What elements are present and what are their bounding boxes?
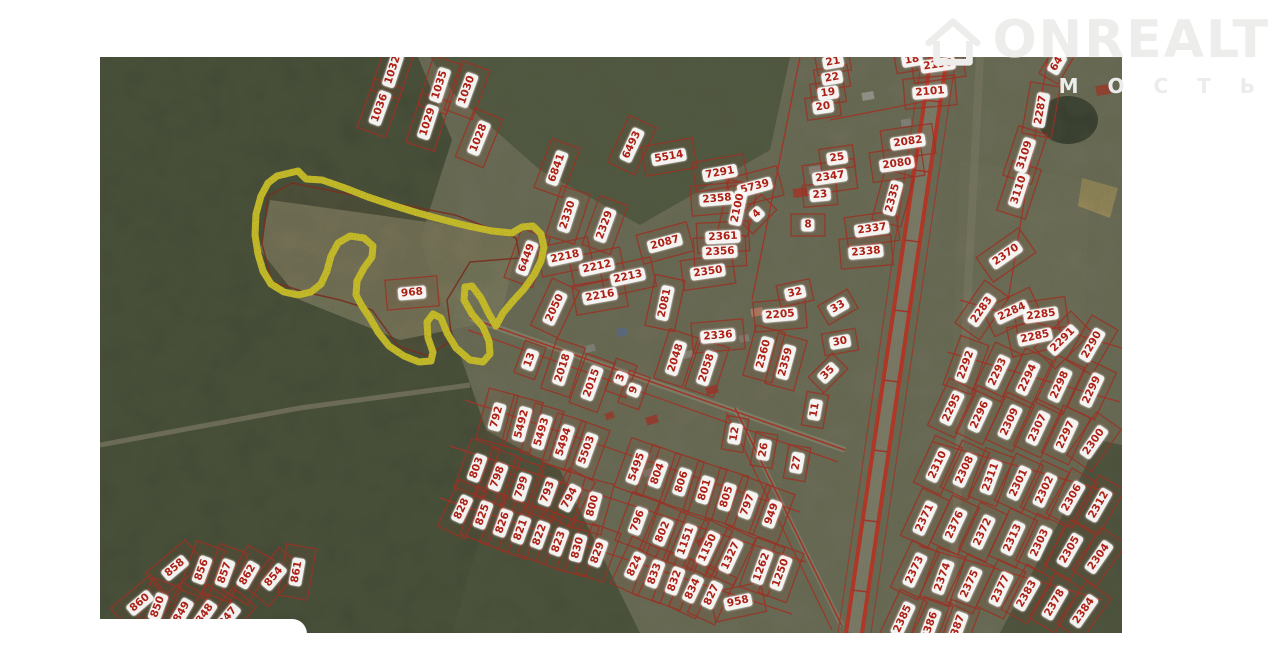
parcel-label: 1151 <box>674 522 698 560</box>
parcel-label: 5514 <box>651 148 688 167</box>
parcel-label: 2377 <box>988 570 1015 607</box>
parcel-label: 804 <box>647 459 669 490</box>
parcel-label: 2301 <box>1006 464 1033 501</box>
parcel-label: 823 <box>548 527 570 558</box>
parcel-label: 857 <box>214 558 236 589</box>
parcel-label: 821 <box>510 515 532 546</box>
parcel-label: 792 <box>487 402 507 432</box>
parcel-label: 6493 <box>619 126 646 163</box>
parcel-label: 2386 <box>918 607 942 633</box>
parcel-label: 5494 <box>552 423 575 461</box>
parcel-label: 2384 <box>1069 593 1100 629</box>
parcel-label: 2311 <box>979 458 1003 496</box>
parcel-label: 801 <box>695 475 716 506</box>
parcel-label: 2383 <box>1013 575 1042 612</box>
parcel-label: 827 <box>700 580 724 611</box>
parcel-label: 2361 <box>705 230 741 245</box>
parcel-label: 949 <box>761 499 783 530</box>
parcel-label: 833 <box>644 559 666 590</box>
parcel-label: 2081 <box>655 284 675 321</box>
parcel-label: 2309 <box>997 403 1024 440</box>
parcel-label: 2374 <box>931 558 955 596</box>
parcel-label: 2287 <box>1032 92 1051 129</box>
parcel-label: 2296 <box>967 396 994 433</box>
parcel-label: 2378 <box>1041 584 1070 621</box>
parcel-label: 862 <box>235 560 260 591</box>
parcel-label: 19 <box>817 85 839 101</box>
parcel-label: 968 <box>398 285 427 300</box>
parcel-label: 1327 <box>718 537 745 574</box>
parcel-label: 2330 <box>556 196 579 234</box>
parcel-label: 1036 <box>368 89 392 127</box>
parcel-label: 2312 <box>1085 486 1114 523</box>
parcel-label: 26 <box>756 439 772 462</box>
parcel-label: 6449 <box>515 239 539 277</box>
parcel-label: 5493 <box>531 413 554 450</box>
parcel-label: 825 <box>472 500 494 531</box>
parcel-label: 35 <box>816 361 840 385</box>
parcel-labels-layer: 1032103610351030102910286841649355142330… <box>100 57 1122 633</box>
parcel-label: 4 <box>748 205 767 224</box>
parcel-label: 33 <box>826 296 850 318</box>
parcel-label: 2292 <box>954 346 978 384</box>
parcel-label: 20 <box>812 99 834 115</box>
parcel-label: 797 <box>737 490 759 521</box>
parcel-label: 2385 <box>890 600 917 633</box>
parcel-label: 2373 <box>902 551 929 588</box>
parcel-label: 30 <box>829 334 852 350</box>
parcel-label: 2294 <box>1015 359 1042 396</box>
parcel-label: 799 <box>512 472 533 503</box>
parcel-label: 2308 <box>952 451 979 488</box>
parcel-label: 2080 <box>879 155 916 173</box>
parcel-label: 2306 <box>1058 479 1087 516</box>
parcel-label: 2297 <box>1053 416 1080 453</box>
parcel-label: 2375 <box>957 565 984 602</box>
parcel-label: 2371 <box>912 499 939 536</box>
parcel-label: 2370 <box>988 240 1024 271</box>
parcel-label: 2213 <box>609 267 646 287</box>
parcel-label: 803 <box>466 453 488 484</box>
parcel-label: 3 <box>613 370 630 387</box>
parcel-label: 2329 <box>593 206 617 244</box>
parcel-label: 800 <box>583 491 603 521</box>
parcel-label: 793 <box>537 477 559 508</box>
parcel-label: 9 <box>626 382 643 399</box>
parcel-label: 2295 <box>939 389 966 426</box>
parcel-label: 2360 <box>753 335 775 372</box>
parcel-label: 2205 <box>762 307 798 323</box>
parcel-label: 2300 <box>1079 424 1110 460</box>
parcel-label: 806 <box>672 467 693 498</box>
parcel-label: 2307 <box>1025 409 1052 446</box>
parcel-label: 2336 <box>700 328 736 344</box>
parcel-label: 2338 <box>848 244 884 260</box>
parcel-label: 23 <box>809 188 831 203</box>
parcel-label: 2298 <box>1047 366 1074 403</box>
parcel-label: 21 <box>822 57 845 70</box>
parcel-label: 2335 <box>882 179 904 216</box>
parcel-label: 2015 <box>580 364 604 402</box>
parcel-label: 3109 <box>1013 136 1036 174</box>
parcel-label: 2303 <box>1027 524 1054 561</box>
parcel-label: 2358 <box>699 191 735 207</box>
parcel-label: 2283 <box>967 292 998 328</box>
parcel-label: 829 <box>587 538 609 569</box>
parcel-label: 2216 <box>582 287 619 306</box>
parcel-label: 832 <box>664 566 686 597</box>
parcel-label: 828 <box>450 494 474 525</box>
parcel-label: 798 <box>487 462 509 493</box>
parcel-label: 2313 <box>1000 519 1027 556</box>
satellite-map[interactable]: 1032103610351030102910286841649355142330… <box>100 57 1122 633</box>
parcel-label: 5495 <box>625 448 649 486</box>
parcel-label: 824 <box>623 551 647 582</box>
parcel-label: 958 <box>723 593 753 612</box>
parcel-label: 856 <box>191 555 213 586</box>
parcel-label: 2293 <box>985 353 1012 390</box>
parcel-label: 13 <box>520 348 539 372</box>
parcel-label: 3110 <box>1007 171 1030 209</box>
parcel-label: 1032 <box>381 57 404 89</box>
parcel-label: 2376 <box>942 506 969 543</box>
parcel-label: 12 <box>727 423 743 446</box>
parcel-label: 2356 <box>702 245 738 260</box>
parcel-label: 1035 <box>428 66 451 104</box>
parcel-label: 861 <box>288 557 306 587</box>
parcel-label: 8 <box>801 219 814 232</box>
parcel-label: 5503 <box>575 431 599 469</box>
parcel-label: 2087 <box>646 232 683 254</box>
parcel-label: 1028 <box>466 119 491 157</box>
parcel-label: 2310 <box>925 446 952 483</box>
parcel-label: 2050 <box>542 289 569 326</box>
parcel-label: 2387 <box>945 610 969 633</box>
parcel-label: 2350 <box>690 263 727 281</box>
bottom-white-card <box>0 619 307 670</box>
parcel-label: 1030 <box>455 71 479 109</box>
parcel-label: 32 <box>784 284 807 301</box>
parcel-label: 2101 <box>912 84 948 100</box>
parcel-label: 2302 <box>1032 471 1059 508</box>
parcel-label: 6841 <box>545 149 569 187</box>
parcel-label: 826 <box>492 508 514 539</box>
parcel-label: 2347 <box>812 168 849 186</box>
parcel-label: 2196 <box>920 57 957 74</box>
parcel-label: 7291 <box>702 164 739 183</box>
parcel-label: 830 <box>568 533 588 563</box>
parcel-label: 64 <box>1046 57 1068 76</box>
parcel-label: 802 <box>652 517 675 548</box>
screenshot-stage: 1032103610351030102910286841649355142330… <box>0 0 1280 670</box>
parcel-label: 1150 <box>695 529 722 566</box>
parcel-label: 2058 <box>695 349 718 387</box>
parcel-label: 5492 <box>511 405 533 442</box>
parcel-label: 2299 <box>1079 371 1106 408</box>
parcel-label: 858 <box>160 554 190 582</box>
parcel-label: 2218 <box>546 247 583 267</box>
parcel-label: 854 <box>260 562 288 592</box>
parcel-label: 1029 <box>416 103 439 141</box>
parcel-label: 822 <box>529 520 551 551</box>
parcel-label: 2337 <box>854 220 891 238</box>
parcel-label: 25 <box>826 150 848 166</box>
parcel-label: 22 <box>821 70 844 86</box>
parcel-label: 2372 <box>970 513 997 550</box>
parcel-label: 1250 <box>769 554 793 592</box>
parcel-label: 805 <box>717 482 738 513</box>
parcel-label: 796 <box>627 506 649 537</box>
parcel-label: 2048 <box>664 339 687 377</box>
parcel-label: 2082 <box>890 133 927 151</box>
parcel-label: 794 <box>558 483 583 514</box>
parcel-label: 2304 <box>1084 539 1115 575</box>
parcel-label: 2290 <box>1078 326 1107 363</box>
parcel-label: 11 <box>807 399 823 422</box>
parcel-label: 2359 <box>775 343 797 380</box>
parcel-label: 27 <box>789 452 805 475</box>
parcel-label: 2018 <box>551 349 574 387</box>
parcel-label: 2305 <box>1056 531 1085 568</box>
